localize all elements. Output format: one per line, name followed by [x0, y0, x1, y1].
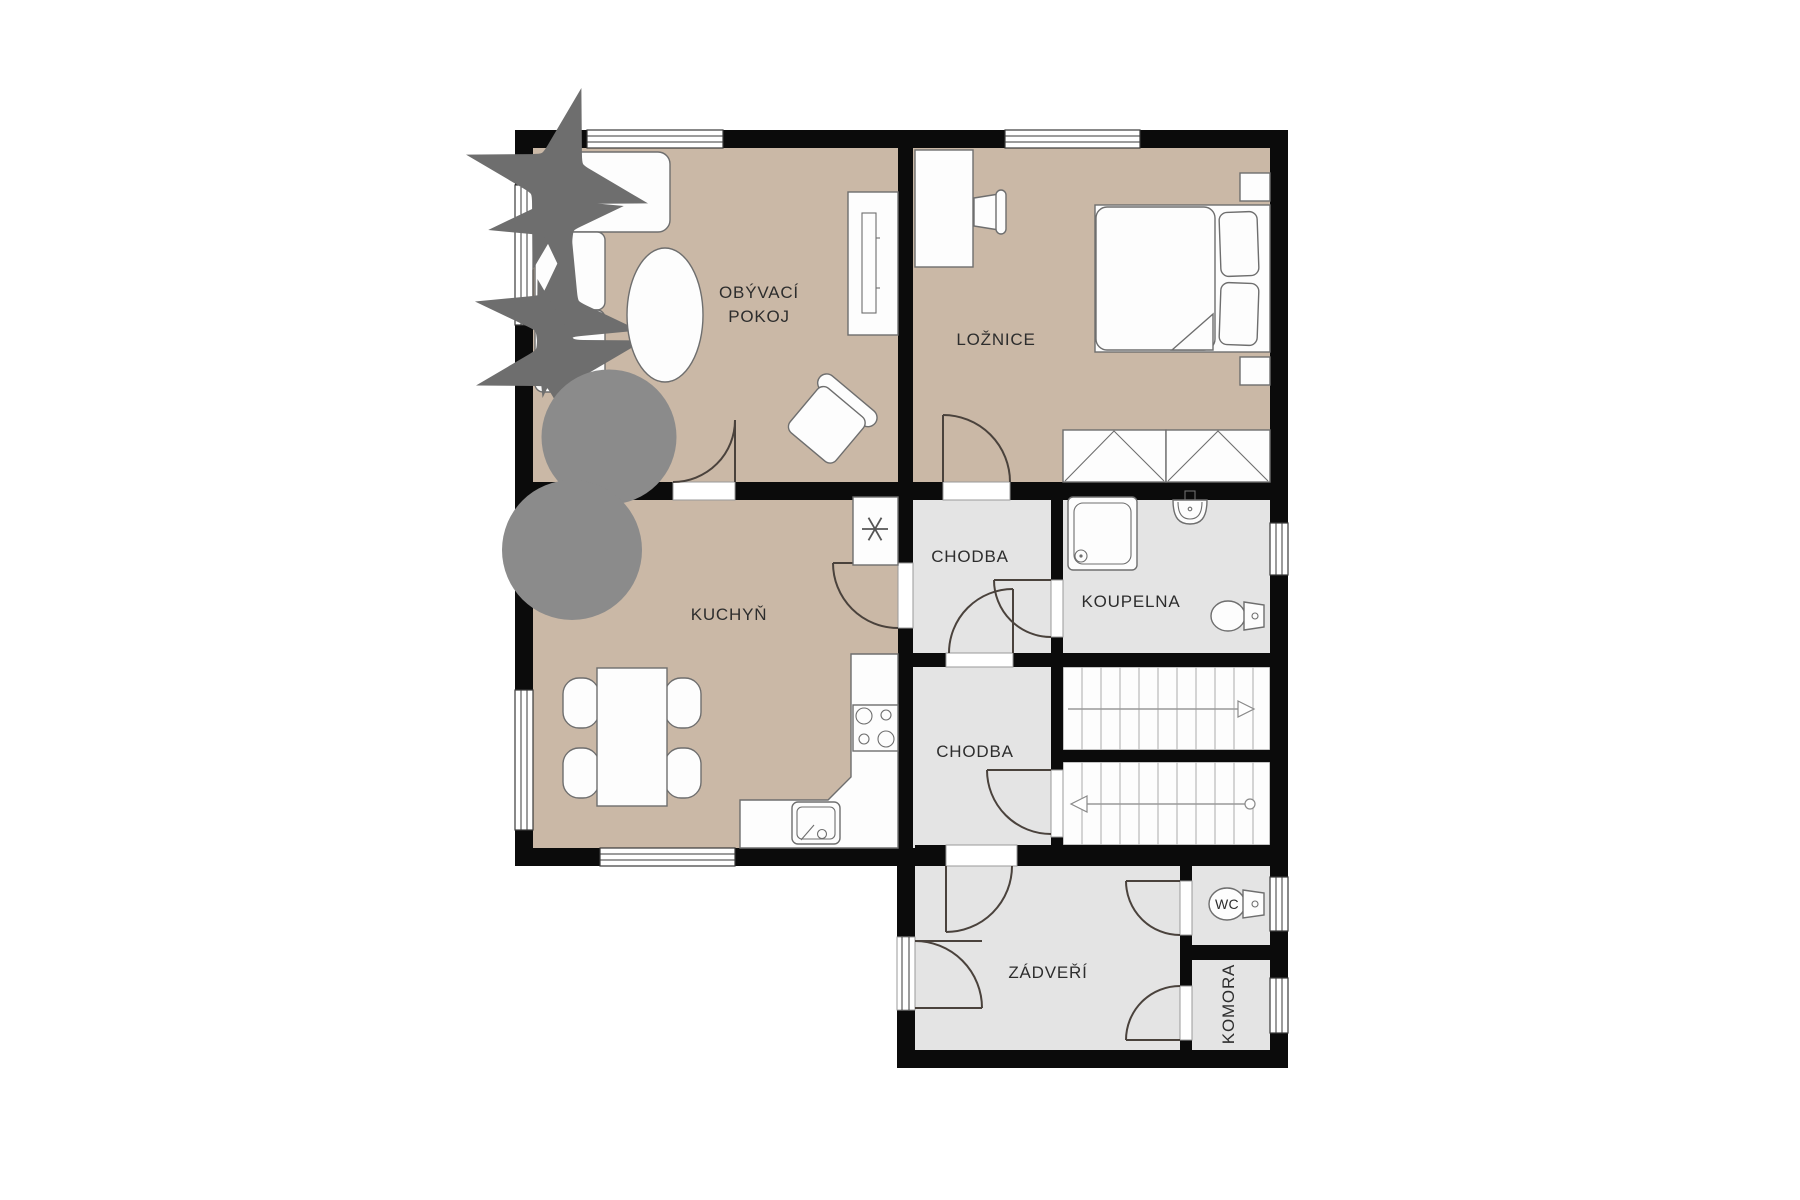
dining-chair: [563, 678, 599, 728]
stove: [853, 705, 898, 751]
dining-chair: [665, 748, 701, 798]
fridge: [853, 497, 898, 565]
wardrobe: [1063, 430, 1270, 482]
window-storage-right: [1270, 978, 1288, 1033]
nightstand: [1240, 173, 1270, 201]
wall-interior-vertical-center: [898, 148, 913, 848]
desk-chair: [974, 190, 1006, 234]
label-bedroom: LOŽNICE: [956, 330, 1035, 349]
label-kitchen: KUCHYŇ: [691, 605, 768, 624]
window-wc-right: [1270, 877, 1288, 931]
dining-chair: [563, 748, 599, 798]
bed-pillow: [1219, 211, 1259, 276]
bed-pillow: [1219, 282, 1259, 345]
nightstand: [1240, 357, 1270, 385]
wall-stairs-separator: [1063, 750, 1270, 762]
plant-kitchen-icon: [502, 480, 642, 620]
label-storage: KOMORA: [1219, 964, 1238, 1044]
shower: [1068, 497, 1137, 570]
window-bedroom-top: [1005, 130, 1140, 148]
wall-interior-wc-storage: [1180, 945, 1288, 960]
toilet-bathroom: [1211, 601, 1264, 631]
tv-cabinet: [848, 192, 898, 335]
window-kitchen-left: [515, 690, 533, 830]
window-bathroom-right: [1270, 523, 1288, 575]
label-hall-lower: CHODBA: [936, 742, 1014, 761]
stairs-down-start-marker: [1245, 799, 1255, 809]
label-wc: WC: [1215, 896, 1239, 912]
label-bathroom: KOUPELNA: [1082, 592, 1181, 611]
dining-chair: [665, 678, 701, 728]
dining-table: [597, 668, 667, 806]
label-vestibule: ZÁDVEŘÍ: [1008, 963, 1087, 982]
oval-coffee-table: [627, 248, 703, 382]
room-vestibule-floor: [908, 856, 1188, 1056]
sofa-pillow: [534, 196, 578, 240]
kitchen-sink: [792, 802, 840, 844]
label-hall-upper: CHODBA: [931, 547, 1009, 566]
window-kitchen-bottom: [600, 848, 735, 866]
floor-plan-drawing: OBÝVACÍ POKOJ LOŽNICE KUCHYŇ CHODBA KOUP…: [0, 0, 1800, 1200]
label-living-line1: OBÝVACÍ: [719, 283, 799, 302]
wall-exterior-bottom: [897, 1050, 1288, 1068]
window-living-top: [587, 130, 723, 148]
desk: [915, 150, 973, 267]
floor-plan-page: OBÝVACÍ POKOJ LOŽNICE KUCHYŇ CHODBA KOUP…: [0, 0, 1800, 1200]
label-living-line2: POKOJ: [728, 307, 790, 326]
